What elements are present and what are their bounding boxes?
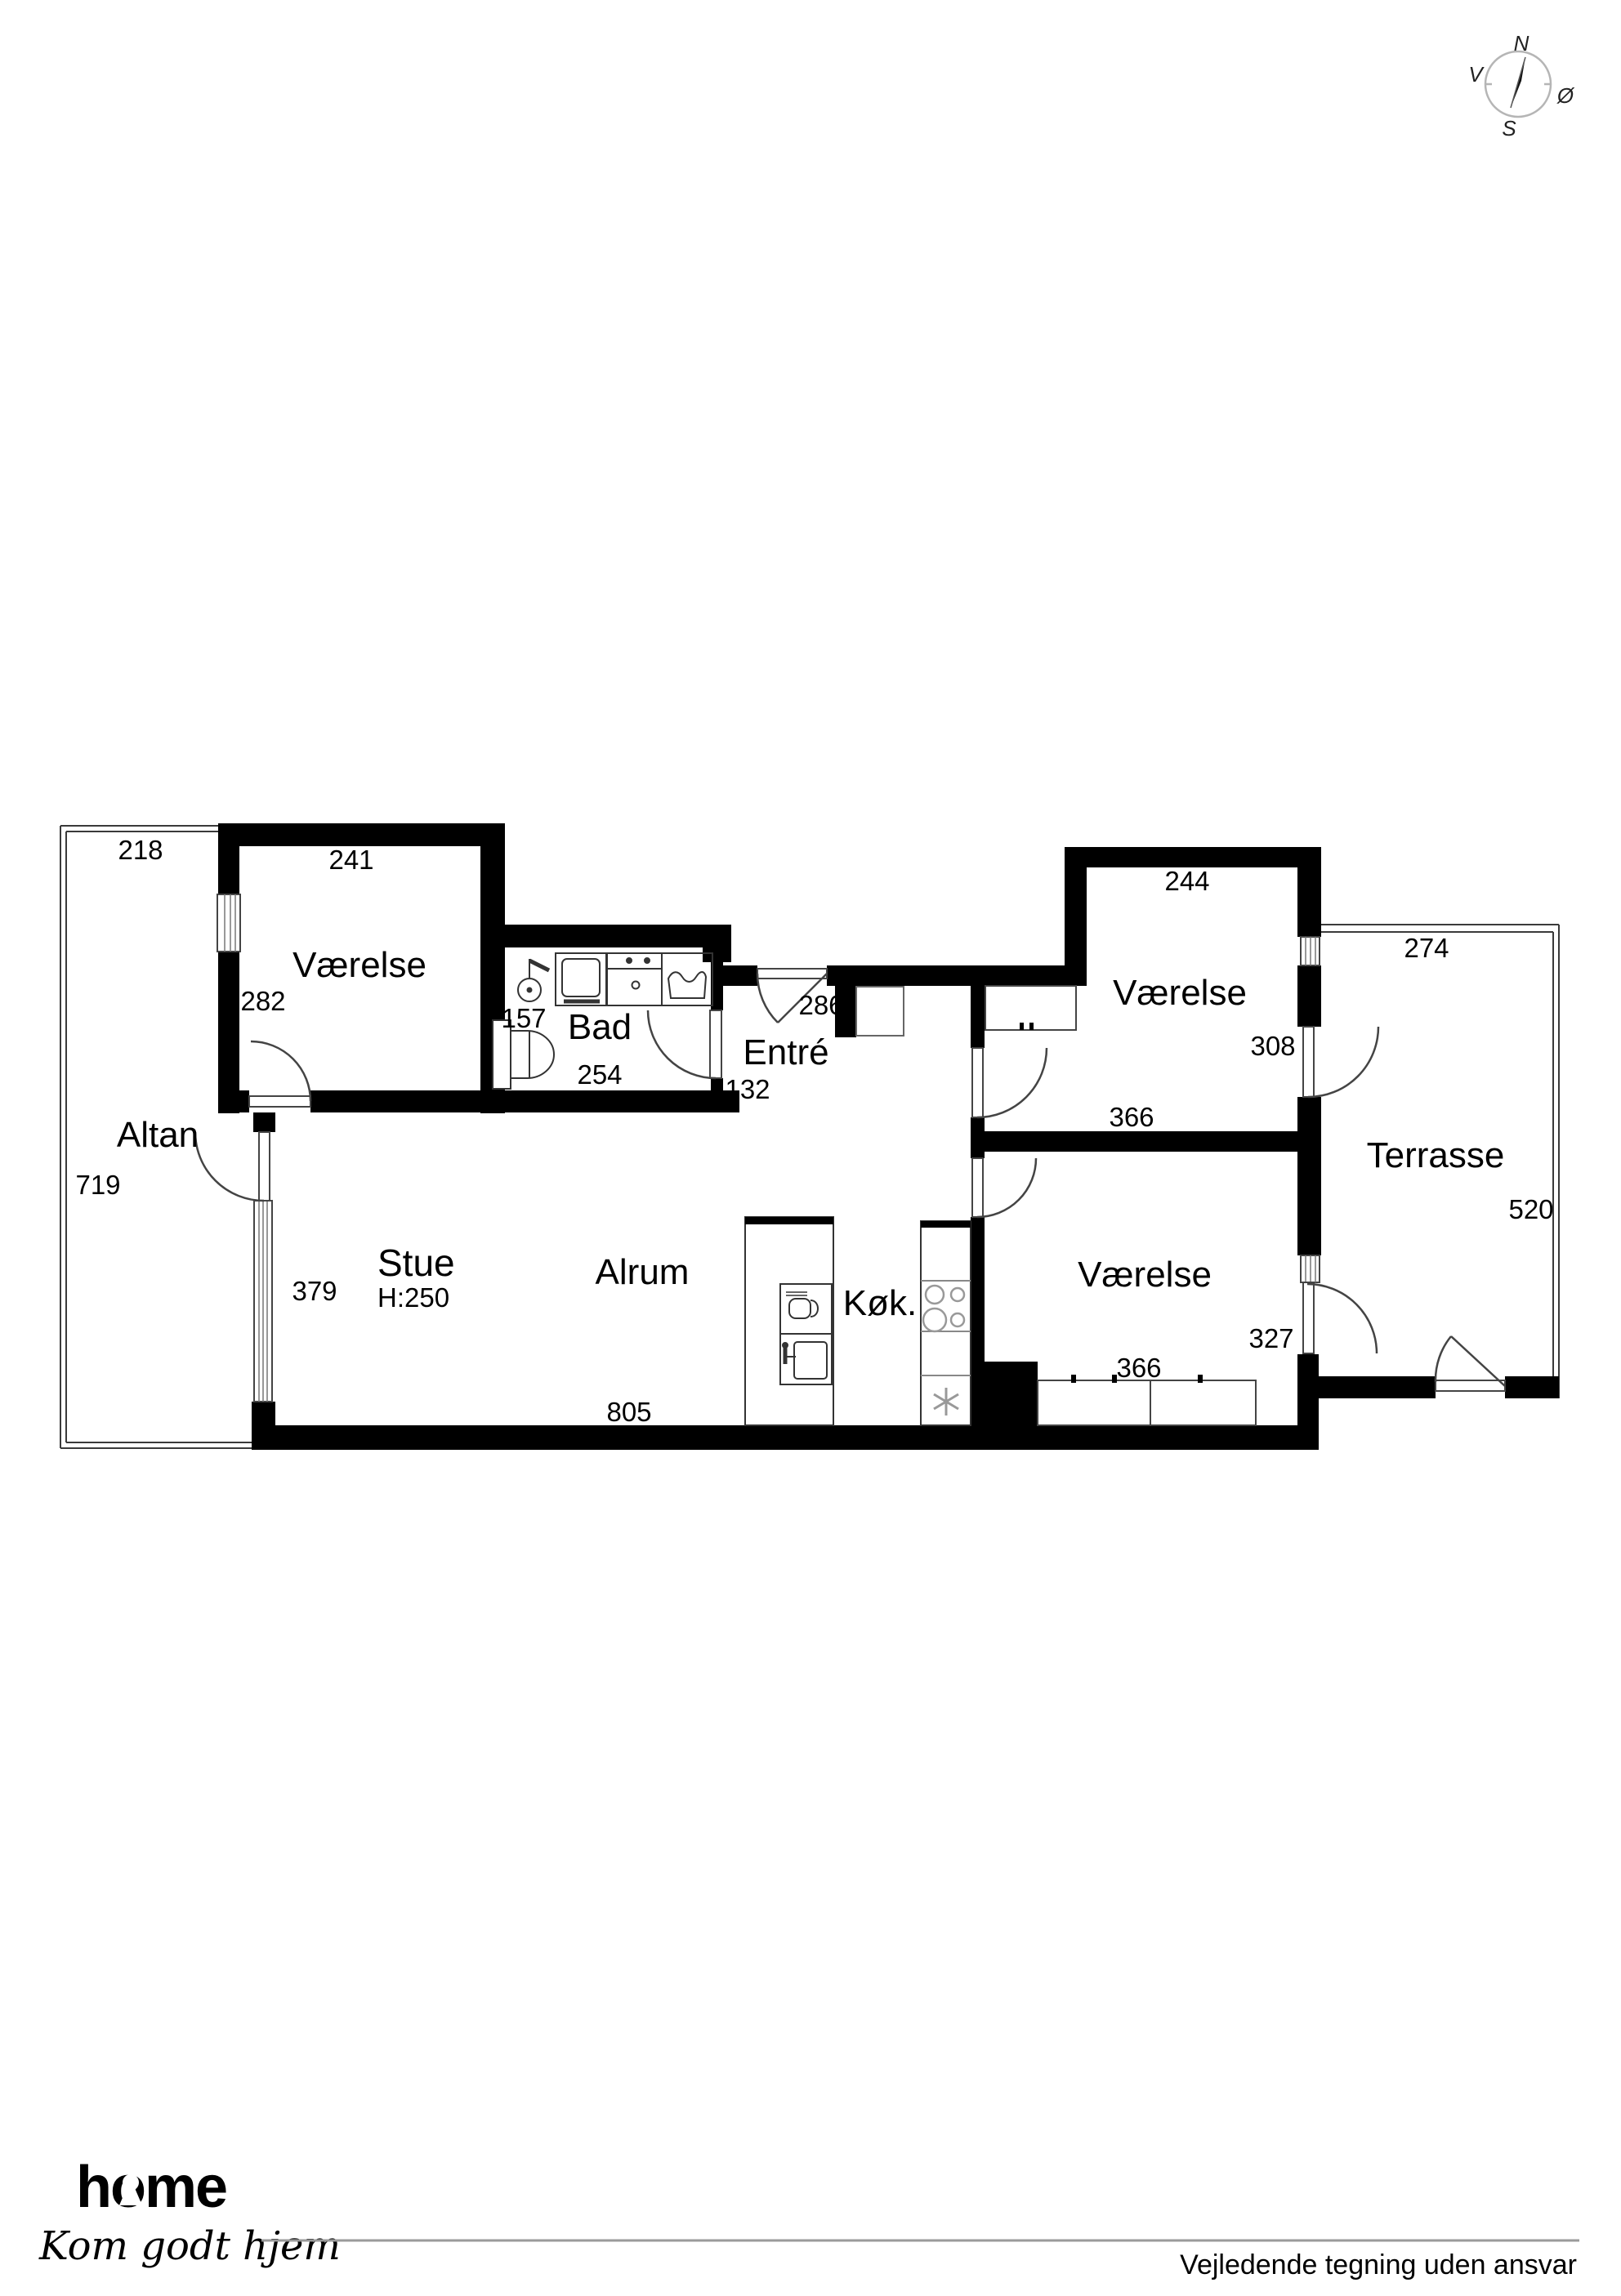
dimension-label: 379 [292, 1276, 337, 1306]
dimension-label: 286 [798, 990, 843, 1020]
shower-cabinet-icon [556, 953, 606, 1005]
compass-north: N [1514, 31, 1529, 56]
wardrobe-hook [1020, 1023, 1024, 1030]
entre-closet [856, 987, 904, 1036]
sink-icon [607, 953, 662, 1005]
room-label-terrasse: Terrasse [1367, 1135, 1505, 1175]
room-label-alrum: Alrum [596, 1252, 690, 1292]
compass-icon: N S V Ø [1468, 31, 1575, 140]
dimension-label: 805 [606, 1397, 651, 1427]
window-symbol-altan-stue [254, 1201, 272, 1402]
room-label-vaerelse-3: Værelse [1078, 1255, 1212, 1295]
window-symbol-vaerelse3-terrasse [1301, 1255, 1320, 1282]
compass-east: Ø [1556, 83, 1575, 108]
wall-segments [218, 823, 1559, 1450]
dimension-label: 366 [1116, 1353, 1161, 1383]
dimension-label: 282 [240, 986, 285, 1016]
room-label-altan: Altan [117, 1115, 199, 1155]
wardrobe-hook [1198, 1375, 1203, 1383]
kitchen-island [745, 1217, 833, 1425]
wardrobe [1038, 1380, 1256, 1425]
dimension-label: 308 [1250, 1031, 1295, 1061]
brand-logo: home [76, 2155, 226, 2220]
room-label-stue: Stue [377, 1242, 455, 1284]
footer: home Kom godt hjem Vejledende tegning ud… [38, 2155, 1579, 2280]
compass-west: V [1468, 62, 1485, 87]
ceiling-height-label: H:250 [377, 1282, 449, 1313]
room-label-vaerelse-2: Værelse [1113, 973, 1247, 1013]
dimension-label: 241 [328, 845, 373, 875]
disclaimer-text: Vejledende tegning uden ansvar [1180, 2249, 1577, 2280]
dimension-label: 327 [1248, 1323, 1293, 1353]
room-label-entre: Entré [743, 1032, 828, 1072]
compass-south: S [1502, 116, 1516, 140]
kitchen-counter [921, 1221, 971, 1425]
floor-plan: N S V Ø [0, 0, 1621, 2292]
room-label-bad: Bad [568, 1007, 632, 1047]
dimension-label: 157 [501, 1003, 546, 1033]
wardrobe-hook [1071, 1375, 1076, 1383]
dimension-label: 520 [1508, 1194, 1553, 1224]
storage-fixtures [856, 986, 1256, 1425]
shower-head-icon [518, 959, 549, 1001]
room-label-koekken: Køk. [843, 1283, 917, 1323]
wardrobe-hook [1029, 1023, 1034, 1030]
window-symbol-vaerelse2-terrasse [1301, 937, 1320, 965]
dimension-label: 132 [725, 1074, 770, 1104]
window-symbol-altan-vaerelse [217, 894, 240, 952]
dimension-label: 366 [1109, 1102, 1154, 1132]
brand-tagline: Kom godt hjem [38, 2223, 341, 2269]
dimension-label: 719 [75, 1170, 120, 1200]
dimension-label: 218 [118, 835, 163, 865]
dimension-label: 244 [1164, 866, 1209, 896]
dimension-label: 274 [1404, 933, 1449, 963]
dimension-label: 254 [577, 1059, 622, 1090]
room-label-vaerelse-1: Værelse [292, 945, 426, 985]
